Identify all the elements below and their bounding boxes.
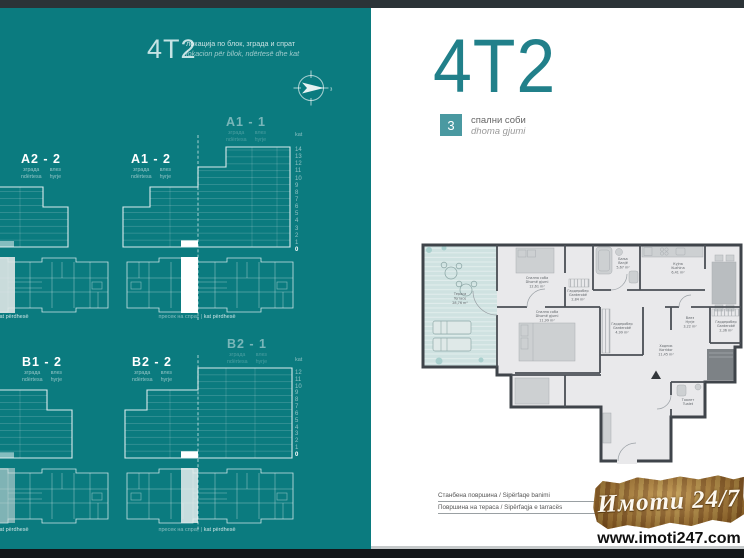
apartment-page: 4T2 3 спални соби dhoma gjumi xyxy=(371,8,744,549)
svg-text:4,99 m²: 4,99 m² xyxy=(615,330,629,334)
location-diagrams: з xyxy=(0,8,371,549)
footprint-caption-lower-right: пресек на спрат | kat përdhesë xyxy=(122,527,272,533)
svg-text:3,22 m²: 3,22 m² xyxy=(683,324,697,328)
bottom-letterbox-bar xyxy=(0,549,744,558)
svg-text:28,76 m²: 28,76 m² xyxy=(452,301,468,305)
highlighted-unit-upper-left xyxy=(0,241,14,247)
block-label-a2-2: A2 - 2 зградаndërtesa влезhyrje xyxy=(0,152,83,180)
location-subtitle-sq: lokacion për bllok, ndërtesë dhe kat xyxy=(186,49,299,59)
svg-text:6,41 m²: 6,41 m² xyxy=(671,270,685,274)
svg-text:11,45 m²: 11,45 m² xyxy=(658,352,674,356)
svg-text:2,36 m²: 2,36 m² xyxy=(719,328,733,332)
highlighted-unit-lower xyxy=(181,451,198,458)
svg-text:Terrace: Terrace xyxy=(453,297,466,301)
footprint-caption-upper-left: пресек на спрат | kat përdhesë xyxy=(0,314,65,320)
bedroom-count-badge: 3 xyxy=(440,114,462,136)
floor-axis-upper: 14131211109876543210 xyxy=(295,147,309,253)
footprint-caption-lower-left: пресек на спрат | kat përdhesë xyxy=(0,527,65,533)
bedroom-label-mk: спални соби xyxy=(471,115,526,126)
compass-direction-label: з xyxy=(330,87,333,93)
svg-text:5,67 m²: 5,67 m² xyxy=(616,265,630,269)
highlighted-unit-upper xyxy=(181,240,198,246)
terrace xyxy=(424,246,497,367)
bedroom-label-sq: dhoma gjumi xyxy=(471,126,526,137)
apartment-title: 4T2 xyxy=(433,28,556,106)
entry-door-gap xyxy=(617,458,637,464)
balcony xyxy=(707,349,735,380)
svg-text:11,99 m²: 11,99 m² xyxy=(539,318,555,322)
compass-icon: з xyxy=(294,71,334,106)
floorplan: Тераса Terrace 28,76 m² Спална соба Dhom… xyxy=(415,235,744,480)
bedroom-count-row: 3 спални соби dhoma gjumi xyxy=(440,114,526,137)
watermark-logo: Имоти 24/7 xyxy=(592,473,744,532)
floor-axis-label-upper: kat xyxy=(295,132,302,138)
block-label-b2-1: B2 - 1 зградаndërtesa влезhyrje xyxy=(205,337,289,365)
floor-axis-lower: 1211109876543210 xyxy=(295,370,309,458)
svg-text:12,61 m²: 12,61 m² xyxy=(529,284,545,288)
block-label-a1-2: A1 - 2 зградаndërtesa влезhyrje xyxy=(109,152,193,180)
block-label-a1-1: A1 - 1 зградаndërtesa влезhyrje xyxy=(204,115,288,143)
watermark-brand: Имоти 24/7 xyxy=(597,485,741,519)
top-letterbox-bar xyxy=(0,0,744,8)
block-label-b1-2: B1 - 2 зградаndërtesa влезhyrje xyxy=(0,355,84,383)
location-page: з xyxy=(0,8,371,549)
location-subtitle-mk: локација по блок, зграда и спрат xyxy=(186,39,295,48)
document-page: з xyxy=(0,0,744,558)
highlighted-unit-lower-left xyxy=(0,452,14,458)
svg-text:Tualet: Tualet xyxy=(682,402,694,406)
floor-axis-label-lower: kat xyxy=(295,357,302,363)
footprint-caption-upper-right: пресек на спрат | kat përdhesë xyxy=(122,314,272,320)
location-subtitle: локација по блок, зграда и спрат lokacio… xyxy=(186,39,299,58)
room-label-terrace: Тераса xyxy=(453,292,466,296)
block-label-b2-2: B2 - 2 зградаndërtesa влезhyrje xyxy=(110,355,194,383)
svg-text:2,84 m²: 2,84 m² xyxy=(571,297,585,301)
bedroom-count-labels: спални соби dhoma gjumi xyxy=(471,114,526,137)
